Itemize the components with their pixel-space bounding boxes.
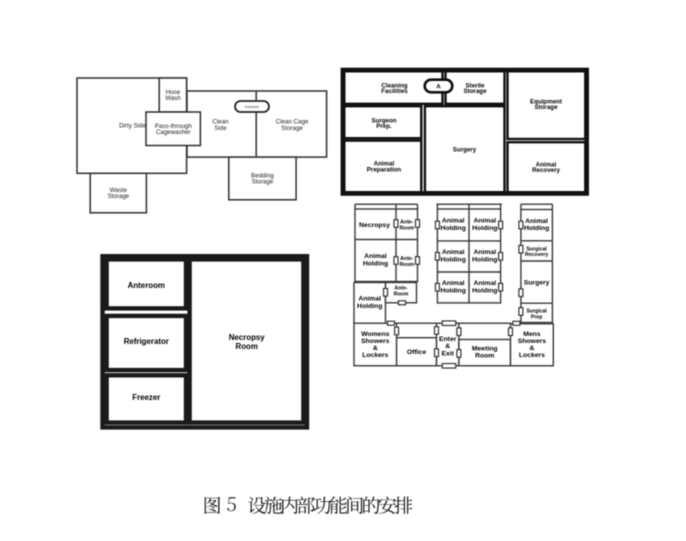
svg-text:Animal: Animal: [442, 218, 465, 225]
svg-text:Animal: Animal: [473, 280, 496, 287]
svg-text:Holding: Holding: [363, 260, 388, 267]
svg-text:Cagewasher: Cagewasher: [156, 129, 191, 136]
svg-text:Animal: Animal: [525, 218, 548, 225]
svg-text:Room: Room: [236, 342, 258, 351]
svg-text:Surgery: Surgery: [524, 280, 550, 287]
svg-text:Autoclave: Autoclave: [245, 105, 260, 109]
svg-text:Holding: Holding: [441, 256, 466, 263]
svg-text:Animal: Animal: [442, 280, 465, 287]
svg-text:Office: Office: [407, 349, 426, 356]
svg-text:Holding: Holding: [472, 225, 497, 232]
svg-text:Showers: Showers: [518, 338, 547, 345]
svg-text:Animal: Animal: [358, 296, 381, 303]
svg-text:Necropsy: Necropsy: [229, 333, 266, 342]
svg-text:Lockers: Lockers: [519, 352, 545, 359]
svg-text:Animal: Animal: [364, 253, 387, 260]
svg-text:&: &: [373, 345, 378, 352]
svg-text:Room: Room: [399, 262, 414, 268]
svg-text:Animal: Animal: [473, 249, 496, 256]
svg-text:Holding: Holding: [472, 256, 497, 263]
svg-text:Freezer: Freezer: [132, 393, 160, 402]
svg-text:Womens: Womens: [361, 331, 389, 338]
svg-text:Side: Side: [214, 125, 227, 132]
svg-text:Surgery: Surgery: [453, 146, 477, 153]
svg-text:Room: Room: [475, 353, 494, 360]
svg-text:Dirty Side: Dirty Side: [119, 122, 146, 129]
svg-text:&: &: [529, 345, 534, 352]
svg-text:Wash: Wash: [165, 95, 181, 102]
svg-text:&: &: [445, 343, 450, 350]
svg-text:Storage: Storage: [252, 179, 274, 186]
svg-text:Prep: Prep: [531, 314, 543, 320]
svg-text:Animal: Animal: [442, 249, 465, 256]
svg-text:Meeting: Meeting: [472, 345, 498, 352]
svg-text:Storage: Storage: [107, 193, 129, 200]
svg-text:Holding: Holding: [441, 287, 466, 294]
svg-text:Room: Room: [399, 226, 414, 232]
svg-text:Storage: Storage: [281, 125, 303, 132]
svg-text:Holding: Holding: [357, 303, 382, 310]
svg-text:Room: Room: [394, 291, 409, 297]
svg-text:Storage: Storage: [534, 104, 558, 111]
svg-text:Recovery: Recovery: [532, 167, 560, 174]
svg-text:Facilities: Facilities: [381, 88, 408, 95]
svg-text:A: A: [436, 84, 441, 91]
svg-text:Mens: Mens: [523, 331, 541, 338]
svg-text:Showers: Showers: [361, 338, 390, 345]
svg-text:Holding: Holding: [472, 287, 497, 294]
svg-text:Enter: Enter: [439, 336, 457, 343]
svg-text:Holding: Holding: [441, 225, 466, 232]
svg-text:Recovery: Recovery: [525, 252, 548, 258]
svg-text:Storage: Storage: [463, 88, 487, 95]
svg-text:Animal: Animal: [473, 218, 496, 225]
svg-text:Preparation: Preparation: [367, 167, 402, 174]
svg-text:Lockers: Lockers: [362, 352, 388, 359]
svg-text:Prep.: Prep.: [376, 123, 392, 130]
svg-text:Necropsy: Necropsy: [359, 222, 390, 229]
svg-text:Anteroom: Anteroom: [128, 281, 165, 290]
svg-text:Exit: Exit: [441, 350, 454, 357]
svg-text:Holding: Holding: [524, 225, 549, 232]
svg-text:Refrigerator: Refrigerator: [124, 337, 169, 346]
